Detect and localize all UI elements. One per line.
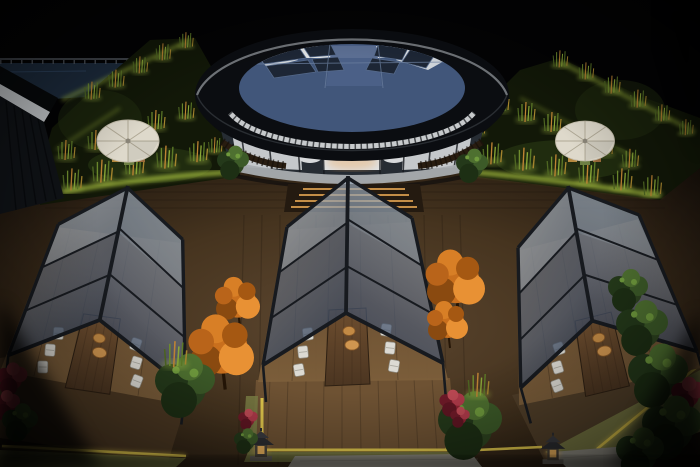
rooftop-terrace-render [0,0,700,467]
scene-canvas [0,0,700,467]
vignette [0,0,700,467]
